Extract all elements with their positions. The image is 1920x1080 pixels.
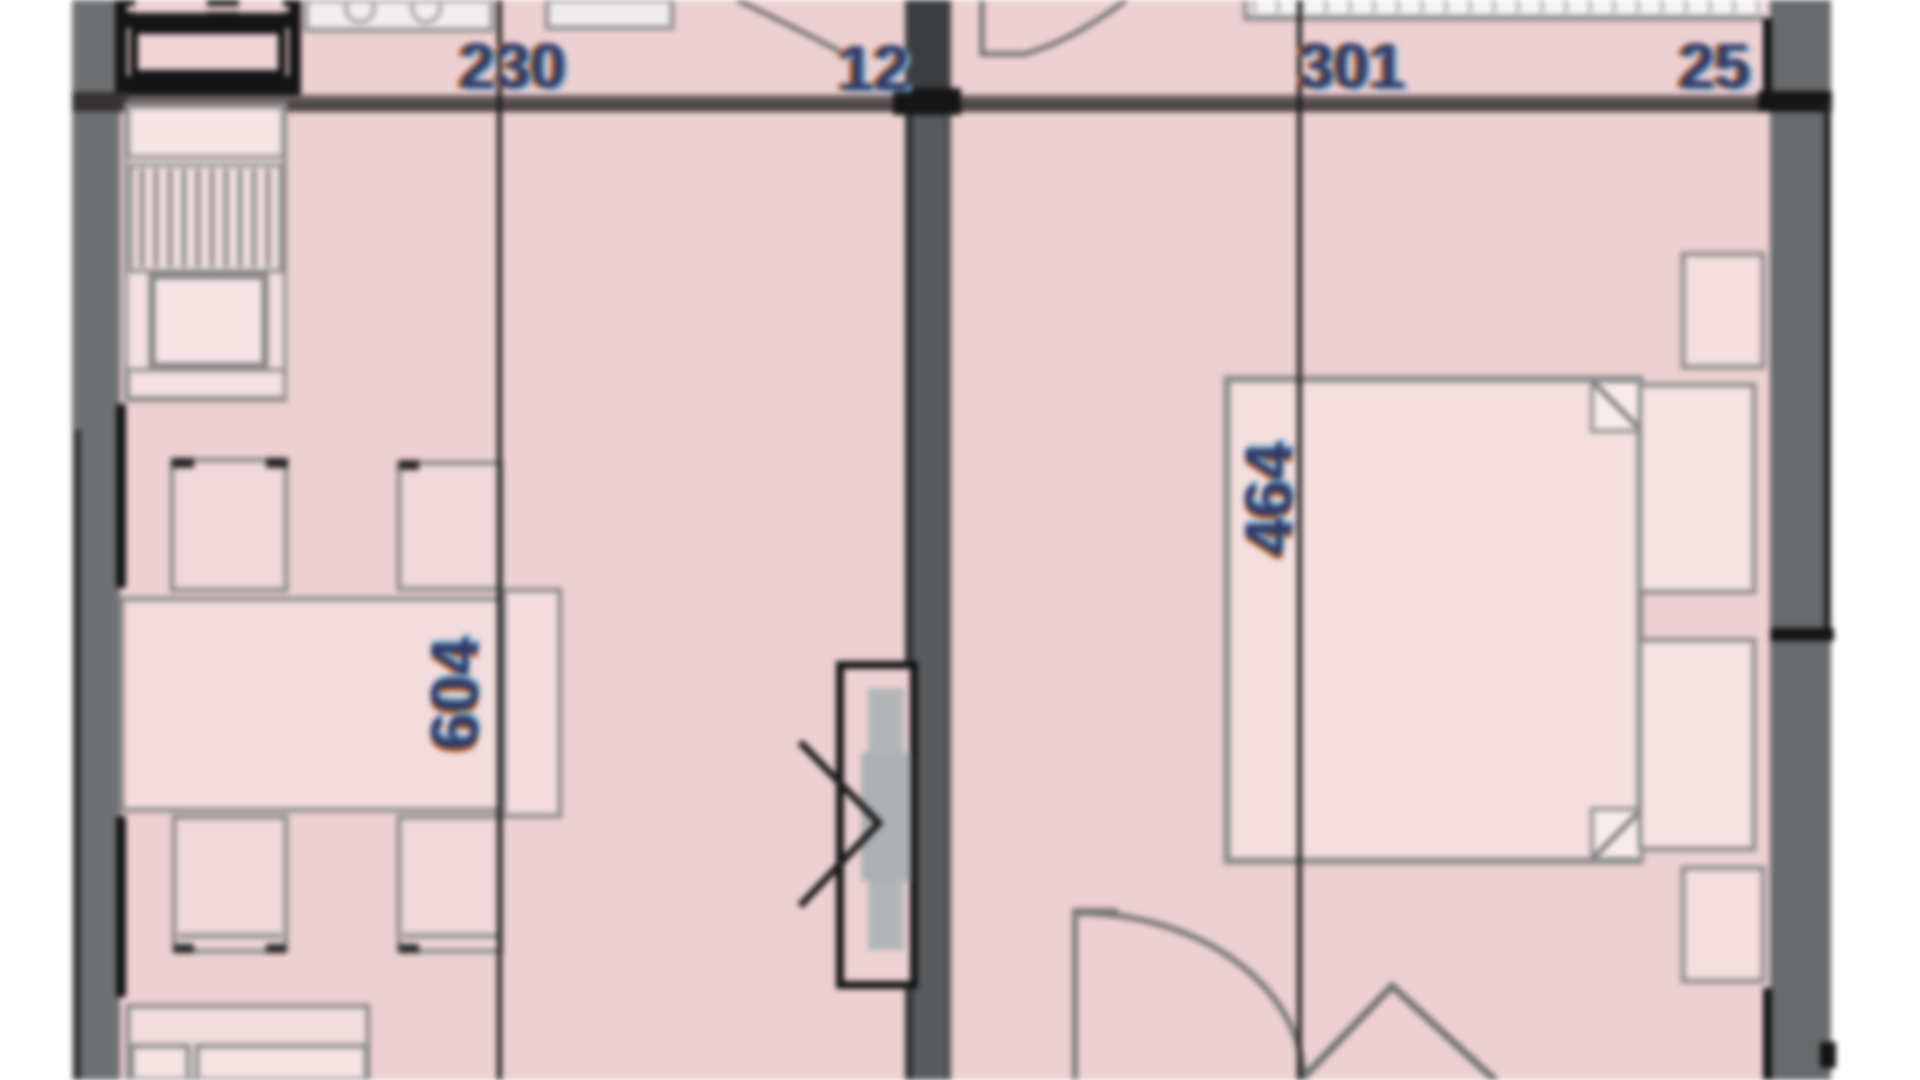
svg-text:230: 230 (460, 30, 567, 102)
svg-text:604: 604 (417, 637, 493, 751)
svg-text:25: 25 (1679, 30, 1750, 102)
svg-text:301: 301 (1299, 30, 1406, 102)
svg-text:464: 464 (1231, 442, 1307, 556)
svg-text:12: 12 (838, 32, 909, 104)
